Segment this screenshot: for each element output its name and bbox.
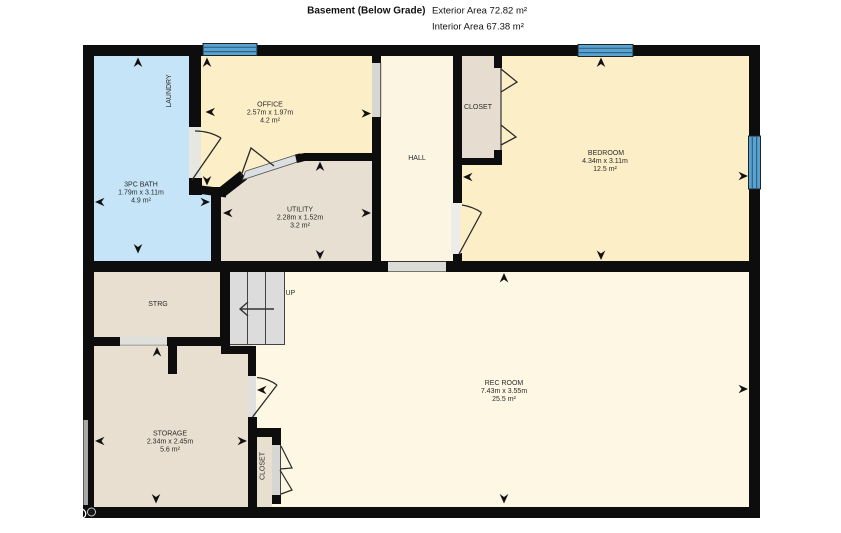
svg-text:3PC BATH: 3PC BATH xyxy=(124,182,158,189)
svg-text:5.6 m²: 5.6 m² xyxy=(160,447,181,454)
svg-text:12.5 m²: 12.5 m² xyxy=(593,166,617,173)
svg-text:CLOSET: CLOSET xyxy=(464,104,493,111)
svg-text:4.2 m²: 4.2 m² xyxy=(260,118,281,125)
svg-text:R: R xyxy=(89,510,94,516)
svg-text:2.28m x 1.52m: 2.28m x 1.52m xyxy=(277,215,323,222)
svg-text:25.5 m²: 25.5 m² xyxy=(492,396,516,403)
svg-text:STRG: STRG xyxy=(148,301,167,308)
svg-text:OFFICE: OFFICE xyxy=(257,102,283,109)
svg-text:Exterior Area 72.82 m²: Exterior Area 72.82 m² xyxy=(432,6,527,17)
svg-text:UP: UP xyxy=(286,290,296,297)
svg-text:REC ROOM: REC ROOM xyxy=(485,380,524,387)
svg-text:UTILITY: UTILITY xyxy=(287,207,313,214)
svg-text:Basement (Below Grade): Basement (Below Grade) xyxy=(307,6,425,17)
svg-text:7.43m x 3.55m: 7.43m x 3.55m xyxy=(481,388,527,395)
svg-text:LAUNDRY: LAUNDRY xyxy=(166,74,173,108)
svg-text:4.34m x 3.11m: 4.34m x 3.11m xyxy=(582,158,628,165)
svg-text:4.9 m²: 4.9 m² xyxy=(131,198,152,205)
svg-text:2.34m x 2.45m: 2.34m x 2.45m xyxy=(147,439,193,446)
svg-text:BEDROOM: BEDROOM xyxy=(588,150,624,157)
svg-text:2.57m x 1.97m: 2.57m x 1.97m xyxy=(247,110,293,117)
svg-text:HALL: HALL xyxy=(408,155,426,162)
svg-text:STORAGE: STORAGE xyxy=(153,431,187,438)
svg-text:CLOSET: CLOSET xyxy=(260,451,267,480)
svg-text:3.2 m²: 3.2 m² xyxy=(290,223,311,230)
svg-text:1.79m x 3.11m: 1.79m x 3.11m xyxy=(118,190,164,197)
svg-text:Interior Area 67.38 m²: Interior Area 67.38 m² xyxy=(432,22,524,33)
